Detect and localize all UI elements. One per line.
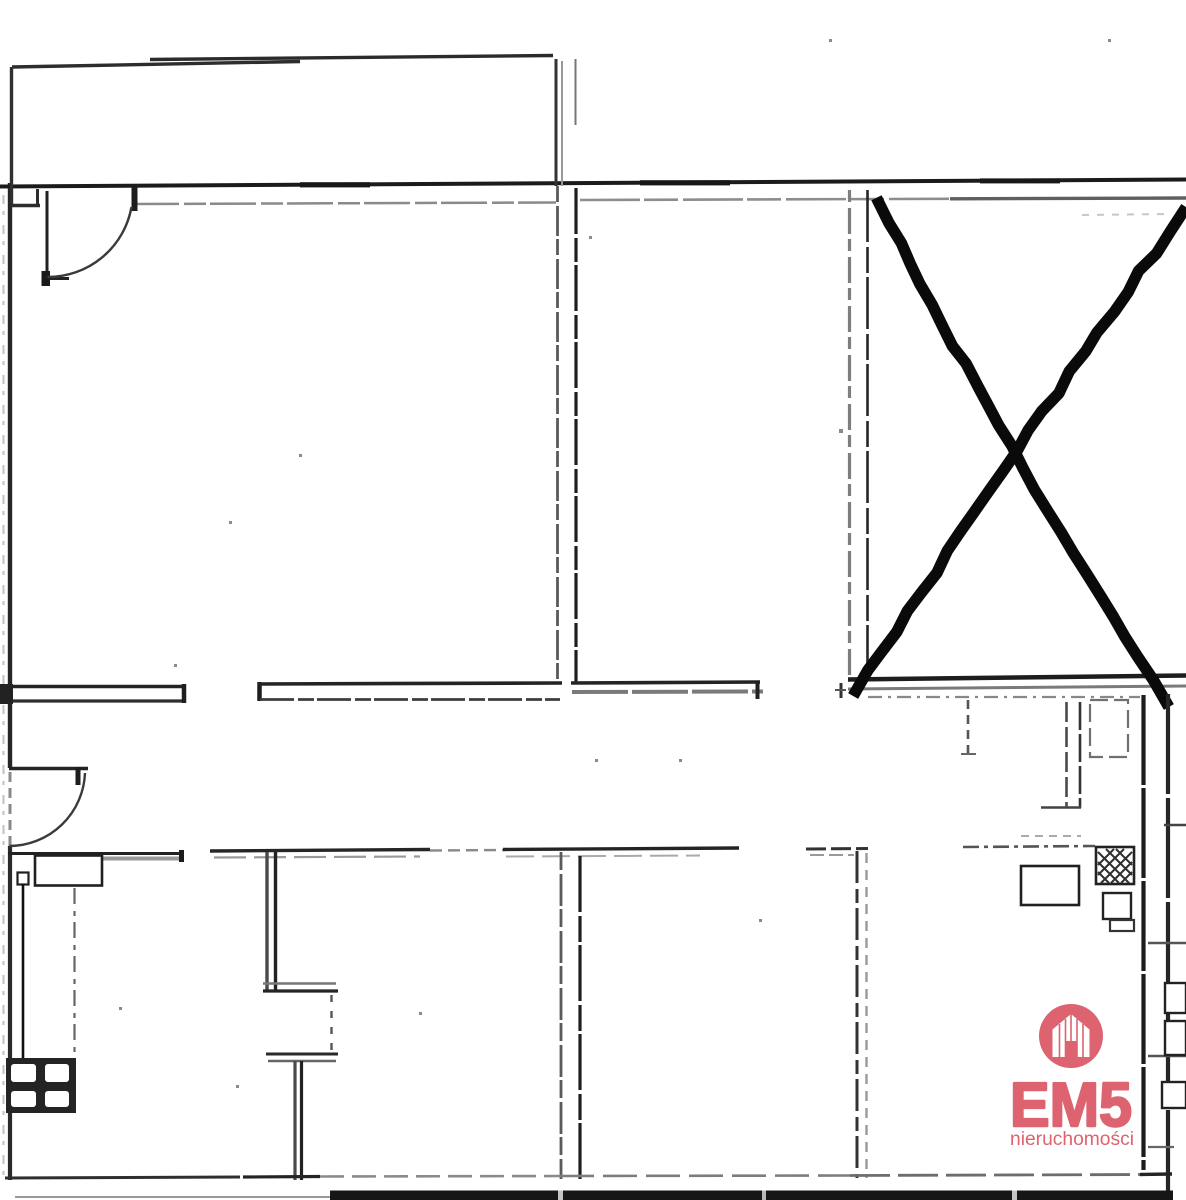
svg-text:nieruchomości: nieruchomości	[1010, 1128, 1134, 1150]
